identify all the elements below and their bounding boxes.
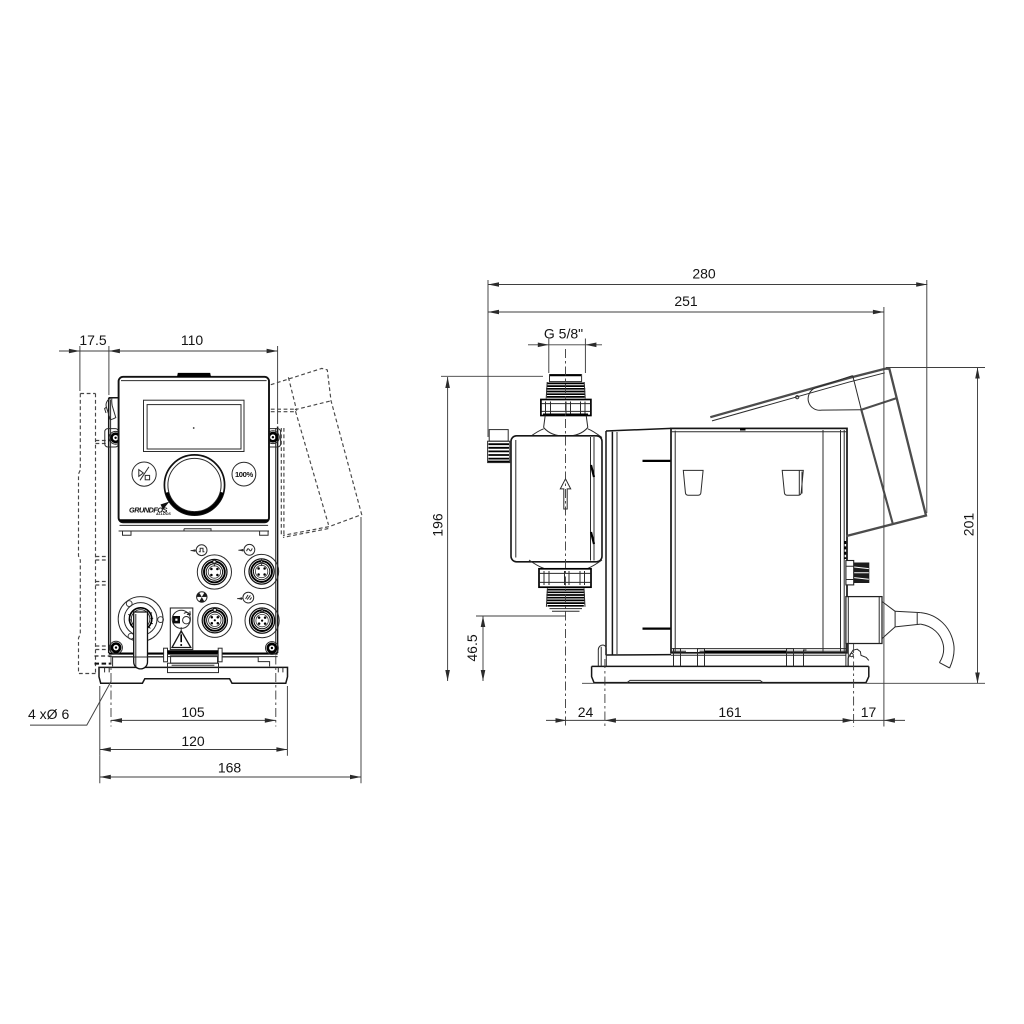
svg-text:G 5/8": G 5/8" bbox=[544, 326, 583, 342]
svg-text:ALLDOS: ALLDOS bbox=[155, 512, 171, 516]
svg-text:17: 17 bbox=[861, 704, 877, 720]
svg-text:105: 105 bbox=[181, 704, 205, 720]
svg-text:110: 110 bbox=[181, 332, 204, 348]
svg-text:120: 120 bbox=[181, 733, 205, 749]
svg-text:168: 168 bbox=[218, 760, 242, 776]
svg-text:24: 24 bbox=[578, 704, 594, 720]
svg-text:46.5: 46.5 bbox=[464, 634, 480, 661]
svg-text:196: 196 bbox=[430, 513, 446, 537]
svg-text:201: 201 bbox=[961, 513, 977, 537]
svg-text:251: 251 bbox=[674, 293, 698, 309]
svg-text:161: 161 bbox=[718, 704, 742, 720]
svg-text:17.5: 17.5 bbox=[79, 332, 106, 348]
svg-text:4 xØ 6: 4 xØ 6 bbox=[28, 706, 69, 722]
svg-text:100%: 100% bbox=[235, 470, 253, 479]
svg-text:280: 280 bbox=[692, 266, 716, 282]
